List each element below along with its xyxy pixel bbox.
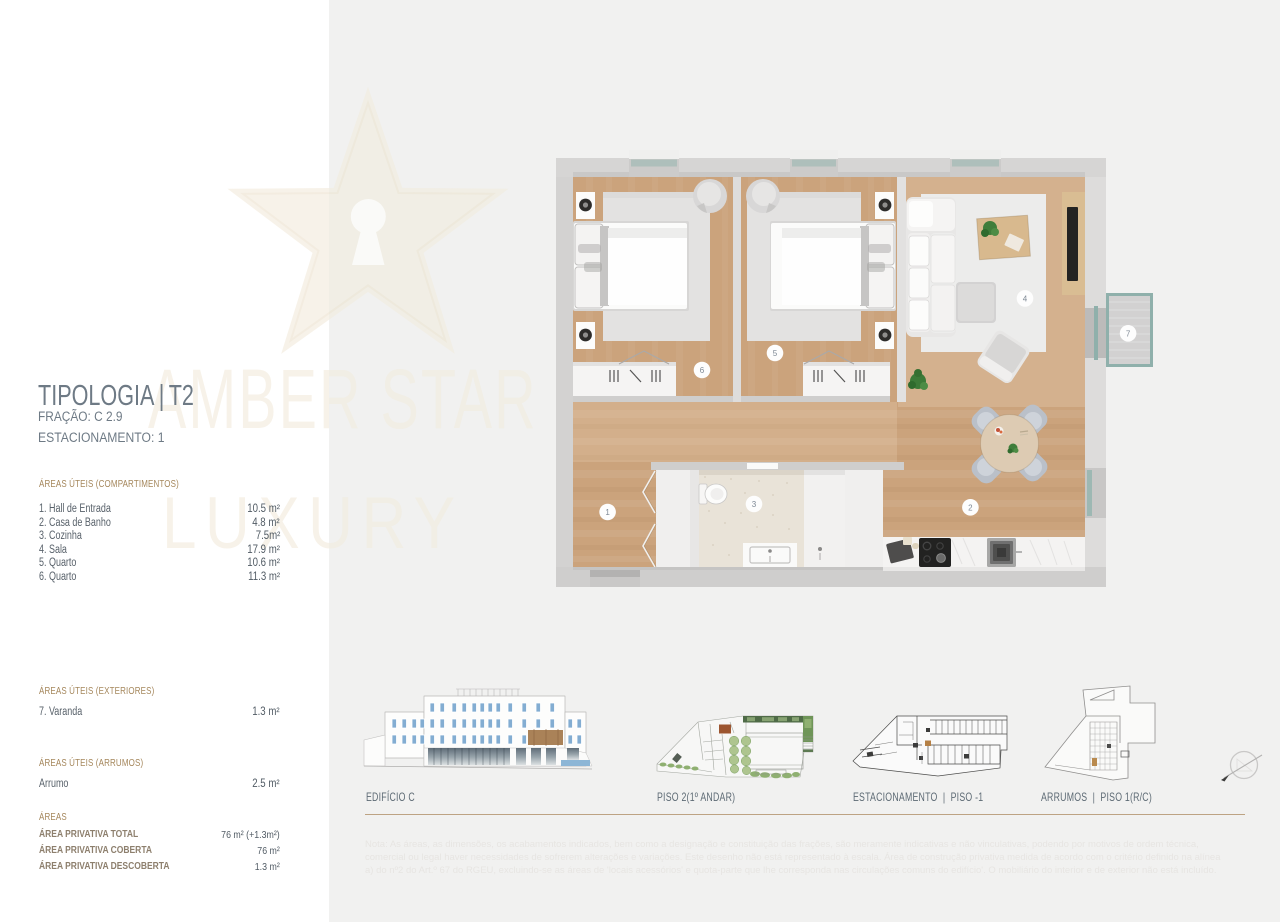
svg-text:4: 4 — [1023, 294, 1028, 303]
svg-text:1: 1 — [605, 508, 610, 517]
svg-text:2: 2 — [968, 503, 973, 512]
svg-text:5: 5 — [773, 349, 778, 358]
svg-text:6: 6 — [700, 366, 705, 375]
svg-text:3: 3 — [752, 500, 757, 509]
svg-text:7: 7 — [1126, 329, 1131, 338]
